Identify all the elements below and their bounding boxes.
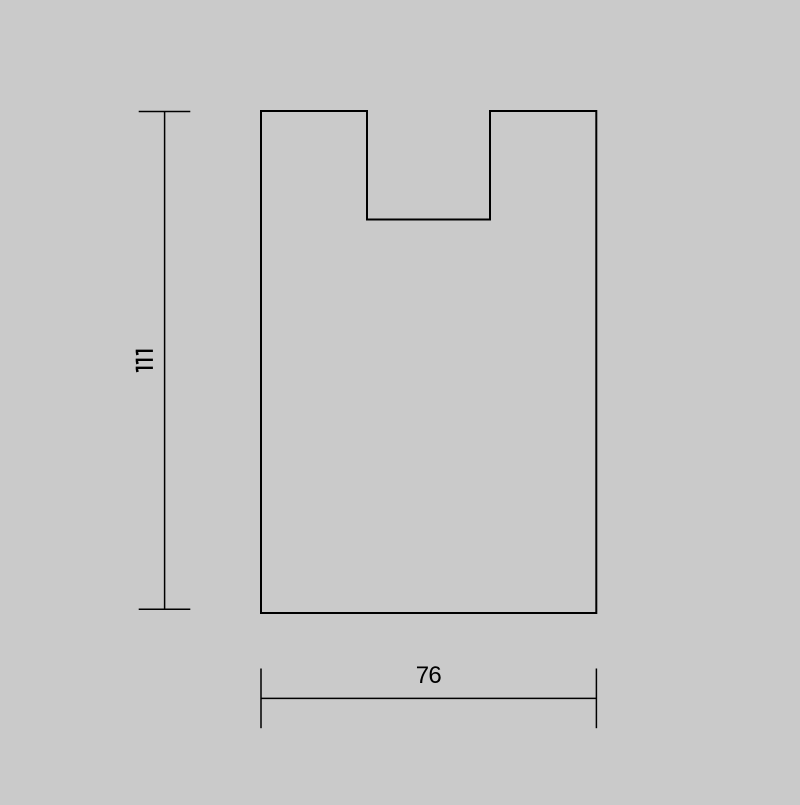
svg-text:76: 76: [416, 662, 442, 689]
